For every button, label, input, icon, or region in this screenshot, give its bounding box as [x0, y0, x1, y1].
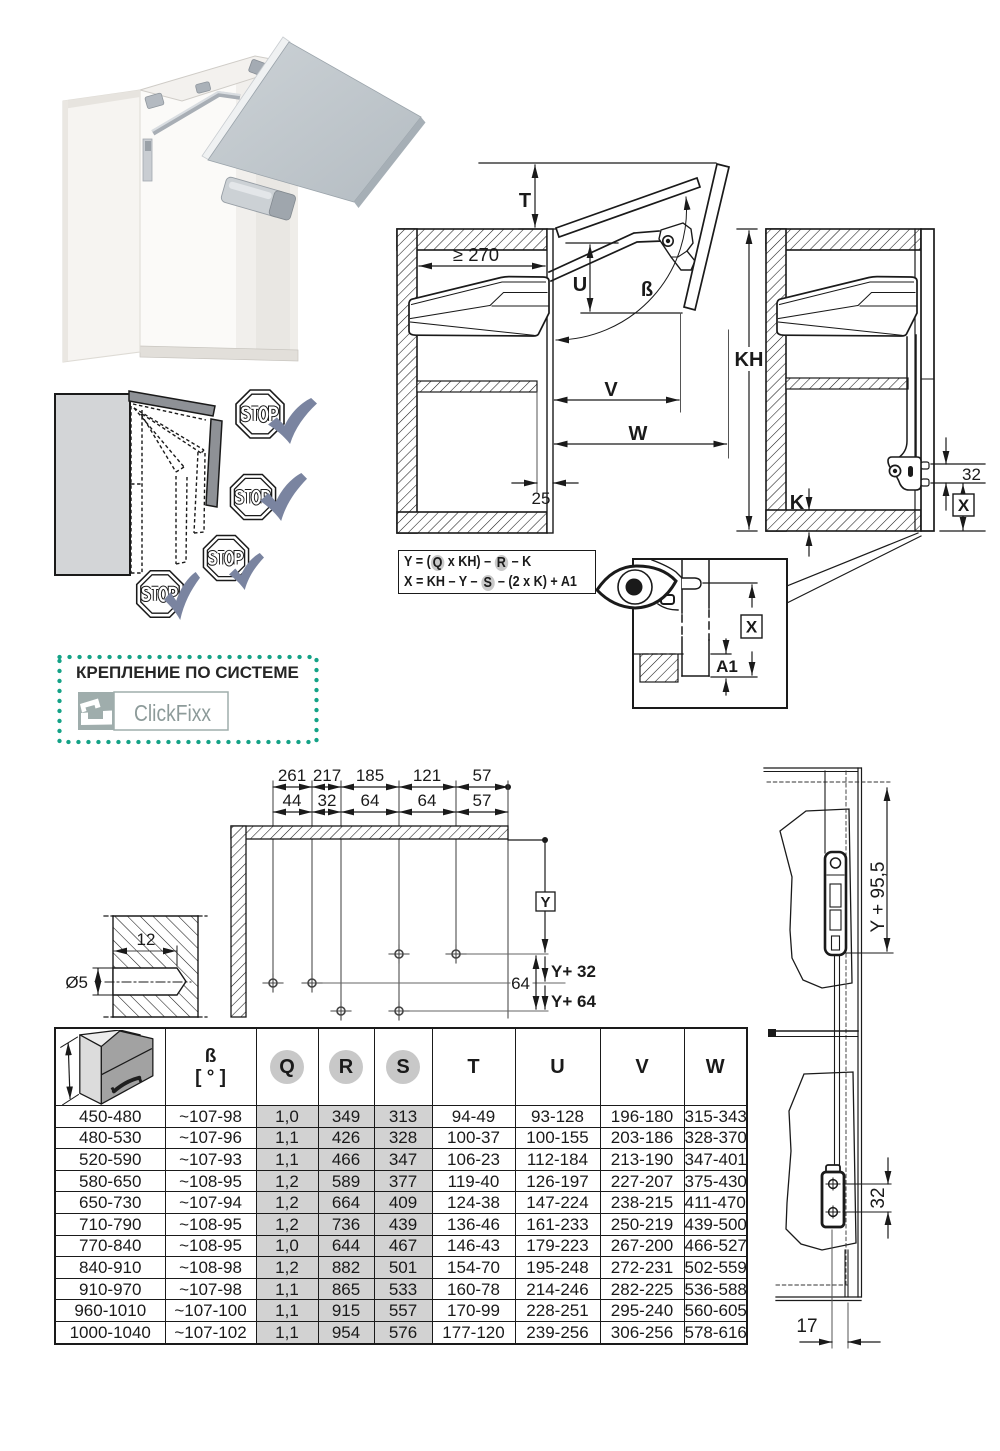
svg-text:32: 32 — [318, 791, 337, 810]
svg-text:ß: ß — [641, 279, 653, 301]
svg-text:V: V — [604, 379, 618, 401]
svg-text:25: 25 — [532, 489, 551, 508]
svg-text:64: 64 — [361, 791, 380, 810]
svg-text:64: 64 — [418, 791, 437, 810]
svg-text:121: 121 — [413, 766, 441, 785]
svg-text:32: 32 — [868, 1187, 889, 1208]
svg-text:W: W — [629, 423, 648, 445]
svg-text:64: 64 — [511, 974, 530, 993]
svg-text:57: 57 — [473, 766, 492, 785]
svg-text:KH: KH — [735, 349, 764, 371]
svg-text:КРЕПЛЕНИЕ ПО СИСТЕМЕ: КРЕПЛЕНИЕ ПО СИСТЕМЕ — [76, 663, 299, 682]
svg-text:Y+ 64: Y+ 64 — [551, 992, 596, 1011]
svg-text:261: 261 — [278, 766, 306, 785]
svg-text:X: X — [746, 618, 758, 637]
svg-text:X: X — [958, 496, 970, 515]
svg-text:17: 17 — [796, 1316, 817, 1337]
svg-text:57: 57 — [473, 791, 492, 810]
svg-text:217: 217 — [313, 766, 341, 785]
svg-text:U: U — [573, 274, 587, 296]
svg-text:32: 32 — [962, 465, 981, 484]
svg-text:ClickFixx: ClickFixx — [134, 700, 211, 726]
svg-text:185: 185 — [356, 766, 384, 785]
svg-text:K: K — [790, 492, 805, 514]
svg-text:A1: A1 — [716, 657, 738, 676]
svg-text:T: T — [519, 190, 531, 212]
svg-text:Y + 95,5: Y + 95,5 — [868, 862, 889, 933]
svg-text:Ø5: Ø5 — [65, 973, 88, 992]
svg-text:≥ 270: ≥ 270 — [453, 244, 499, 265]
svg-text:44: 44 — [283, 791, 302, 810]
svg-text:Y+ 32: Y+ 32 — [551, 962, 596, 981]
svg-text:Y: Y — [540, 894, 550, 911]
svg-text:12: 12 — [137, 930, 156, 949]
